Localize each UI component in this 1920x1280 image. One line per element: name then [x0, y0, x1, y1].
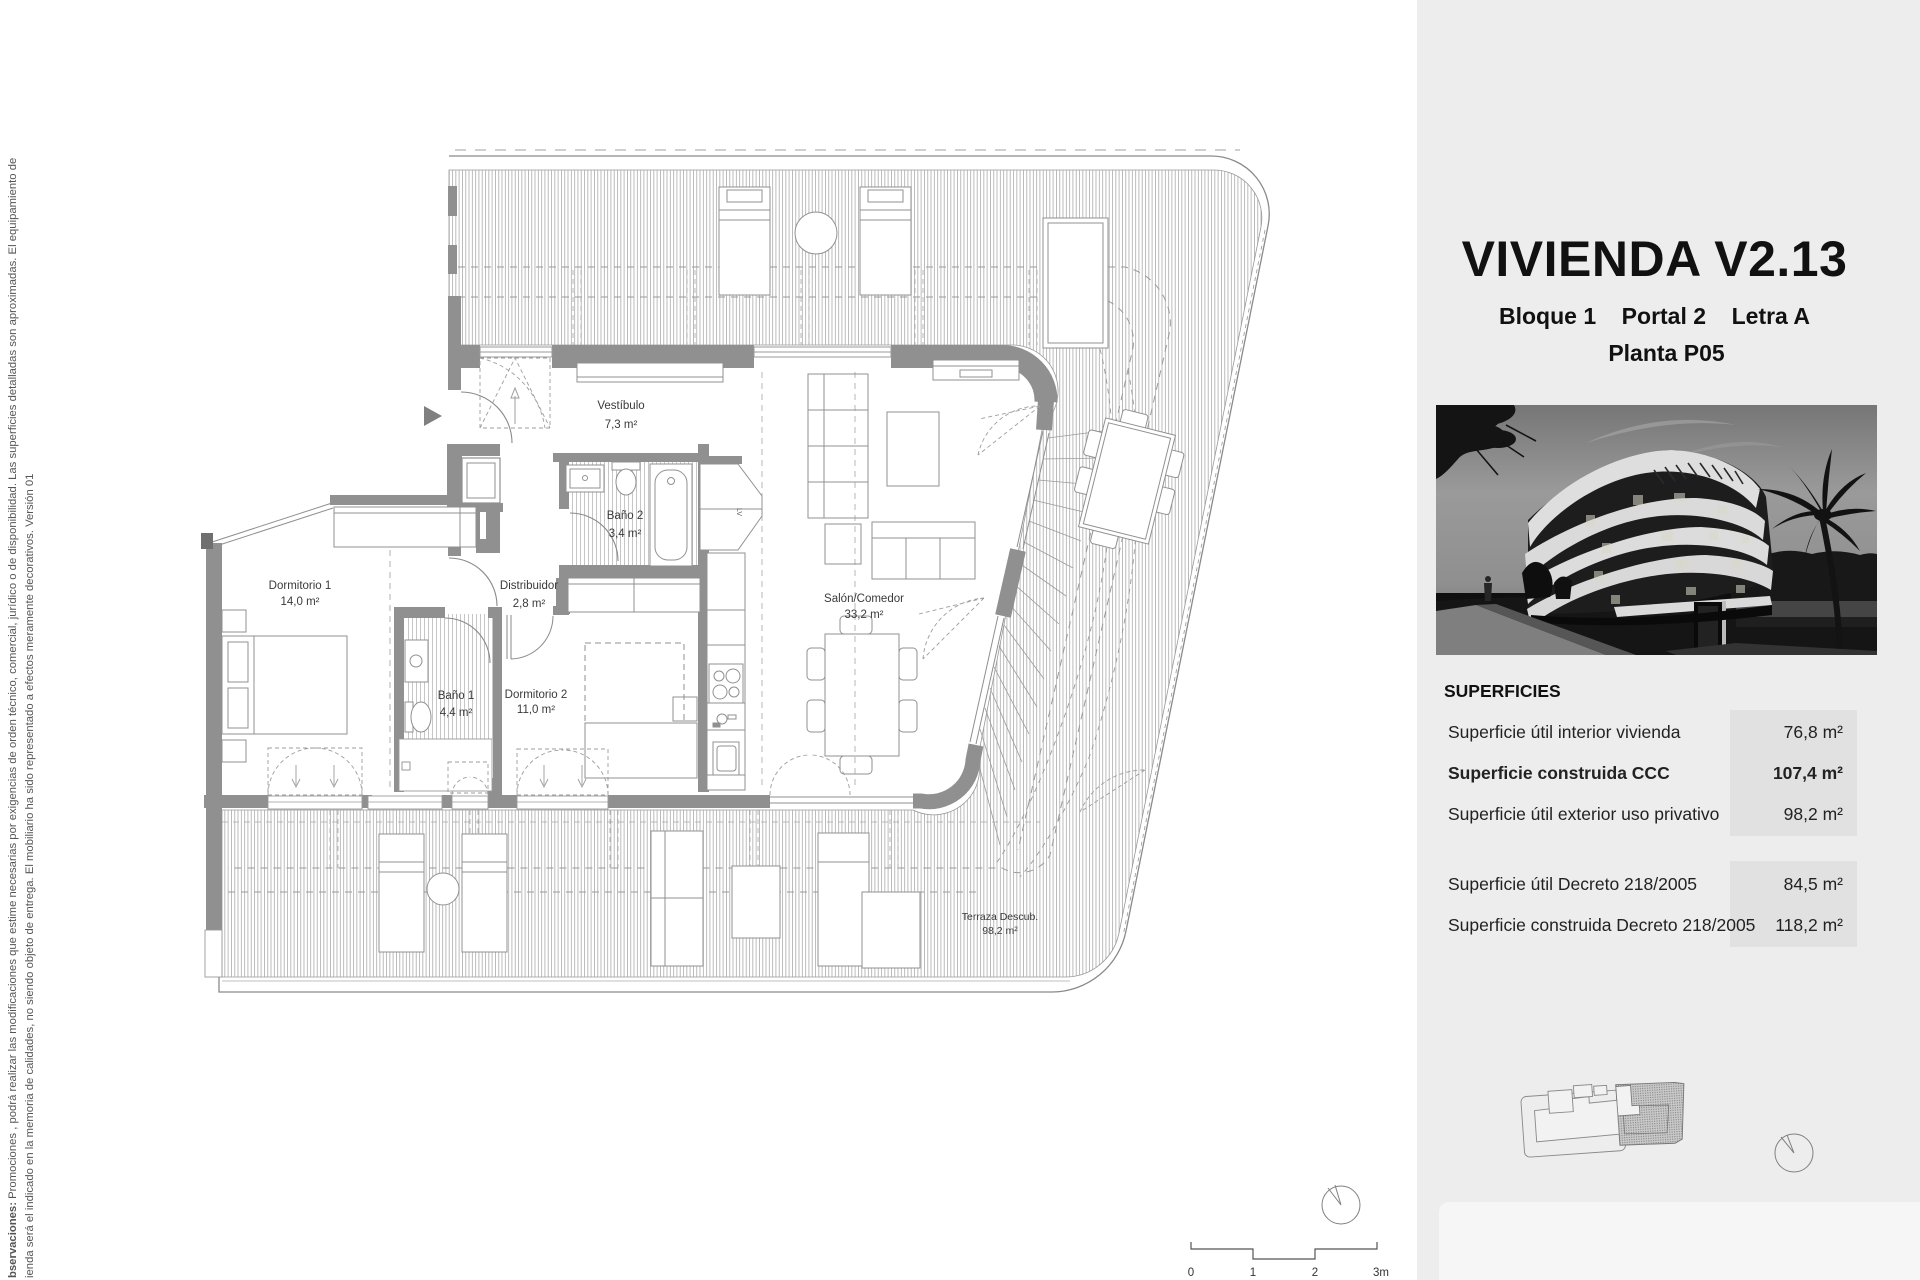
svg-text:Distribuidor: Distribuidor — [500, 580, 558, 592]
svg-text:Terraza Descub.: Terraza Descub. — [962, 911, 1038, 923]
svg-text:1: 1 — [1250, 1267, 1256, 1279]
svg-text:3,4 m²: 3,4 m² — [609, 528, 642, 540]
svg-text:2: 2 — [1312, 1267, 1318, 1279]
svg-text:33,2 m²: 33,2 m² — [845, 609, 884, 621]
svg-text:Vestíbulo: Vestíbulo — [597, 400, 644, 412]
svg-text:bservaciones: Promociones: bservaciones: Promociones , podrá realiz… — [7, 158, 19, 1278]
svg-text:LV: LV — [735, 508, 742, 516]
svg-text:14,0 m²: 14,0 m² — [281, 596, 320, 608]
svg-text:Baño 1: Baño 1 — [438, 690, 474, 702]
svg-text:Salón/Comedor: Salón/Comedor — [824, 593, 904, 605]
svg-text:Baño 2: Baño 2 — [607, 510, 643, 522]
svg-text:98,2 m²: 98,2 m² — [982, 925, 1018, 937]
svg-text:0: 0 — [1188, 1267, 1194, 1279]
svg-text:Dormitorio 1: Dormitorio 1 — [269, 580, 332, 592]
svg-text:3m: 3m — [1373, 1267, 1389, 1279]
svg-text:ienda será el indicado en la m: ienda será el indicado en la memoria de … — [24, 474, 36, 1278]
svg-text:2,8 m²: 2,8 m² — [513, 598, 546, 610]
svg-text:Dormitorio 2: Dormitorio 2 — [505, 689, 568, 701]
svg-text:11,0 m²: 11,0 m² — [517, 704, 555, 716]
svg-text:7,3 m²: 7,3 m² — [605, 419, 638, 431]
svg-text:4,4 m²: 4,4 m² — [440, 707, 473, 719]
